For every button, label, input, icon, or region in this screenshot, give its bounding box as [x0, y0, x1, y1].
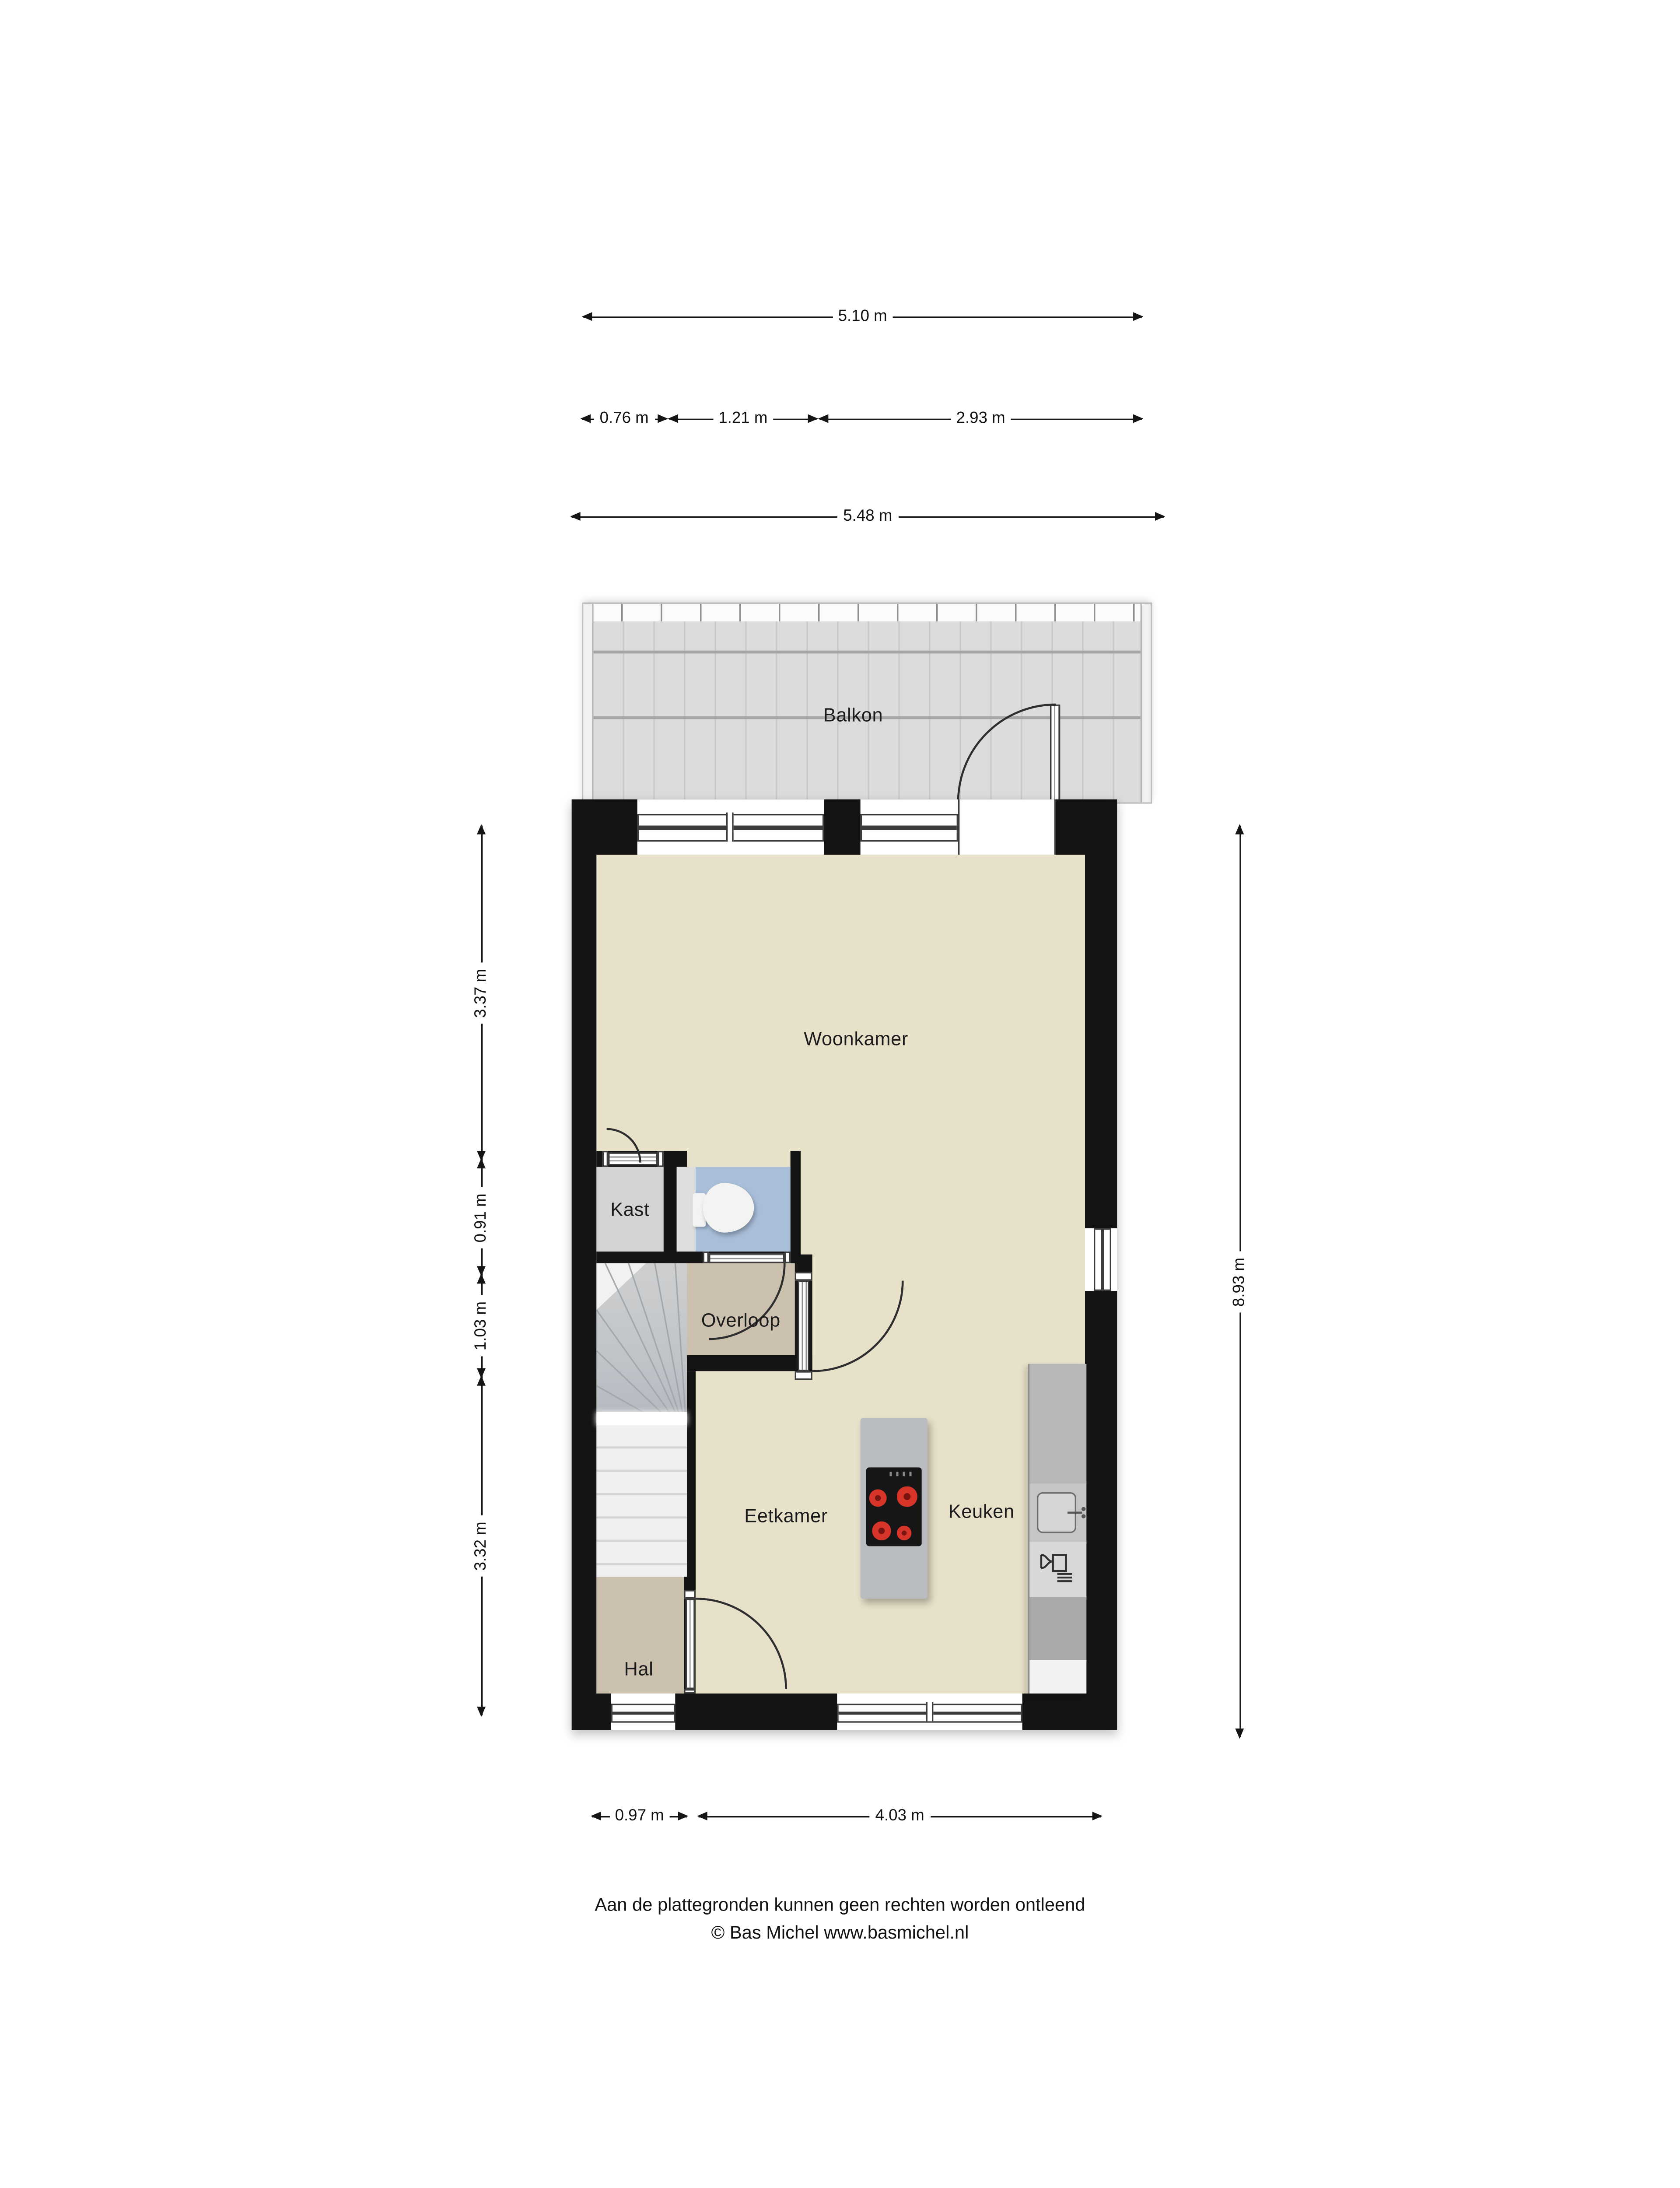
window-bottom-left [611, 1694, 675, 1730]
stairs [596, 1263, 687, 1577]
counter-dishwasher-module [1029, 1542, 1086, 1599]
window-mullion-icon [726, 813, 734, 842]
overloop-label: Overloop [701, 1309, 780, 1331]
dimension-label: 2.93 m [950, 410, 1011, 428]
dimension-label: 1.03 m [473, 1296, 490, 1357]
stairs-highlight [596, 1412, 687, 1425]
kast-label: Kast [610, 1198, 649, 1220]
dishwasher-icon [1040, 1553, 1075, 1585]
cooktop-controls-icon [889, 1472, 915, 1476]
balcony-railing-left-icon [583, 604, 593, 802]
balcony-door-opening [958, 799, 1056, 855]
balcony-railing-right-icon [1141, 604, 1151, 802]
burner-icon [869, 1489, 887, 1507]
window-bottom-right [837, 1694, 1022, 1730]
kitchen-counter [1028, 1364, 1086, 1694]
footer-disclaimer: Aan de plattegronden kunnen geen rechten… [0, 1895, 1680, 1915]
cooktop-icon [865, 1467, 921, 1546]
window-right-wall [1085, 1228, 1117, 1291]
dimension-left-d: 3.32 m [481, 1377, 483, 1715]
dimension-top-a: 0.76 m [582, 419, 666, 420]
dimension-label: 5.48 m [837, 508, 898, 526]
balcony-door-arc-icon [948, 694, 1065, 811]
stairs-winder [596, 1263, 687, 1412]
balcony-label: Balkon [823, 704, 883, 726]
dimension-bottom-a: 0.97 m [592, 1816, 687, 1817]
dimension-left-b: 0.91 m [481, 1160, 483, 1275]
floorplan: Woonkamer Kast Overloop Eetkamer Keuken … [572, 799, 1117, 1730]
eetkamer-label: Eetkamer [744, 1504, 828, 1526]
stairs-winder-treads-icon [596, 1263, 687, 1412]
wall-kast-east [664, 1151, 677, 1263]
balcony: Balkon [583, 604, 1151, 802]
kitchen-island [861, 1418, 927, 1599]
dimension-label: 3.37 m [473, 962, 490, 1023]
dimension-top-overall: 5.48 m [572, 516, 1164, 518]
toilet-bowl-icon [703, 1183, 754, 1232]
overloop-door-arc-icon [802, 1269, 913, 1380]
stairs-straight-treads [596, 1425, 687, 1577]
dimension-left-a: 3.37 m [481, 826, 483, 1160]
counter-module [1029, 1660, 1086, 1694]
dimension-label: 5.10 m [832, 308, 893, 326]
kast-door-arc-icon [598, 1117, 656, 1175]
window-top-left [637, 799, 824, 855]
window-top-right [861, 799, 958, 855]
dimension-label: 0.91 m [473, 1187, 490, 1248]
balcony-railing-icon [583, 604, 1151, 623]
wall-toilet-east [791, 1151, 801, 1263]
burner-icon [896, 1525, 912, 1541]
window-glazing-icon [611, 1703, 675, 1722]
hal-door-arc-icon [686, 1590, 796, 1701]
counter-sink-module [1029, 1483, 1086, 1543]
window-glazing-icon [861, 814, 958, 842]
door-jamb [658, 1151, 663, 1167]
wall-overloop-south [684, 1355, 812, 1371]
faucet-icon [1067, 1505, 1088, 1520]
balcony-deck-joint-icon [594, 651, 1141, 654]
counter-module [1029, 1364, 1086, 1485]
floorplan-page: 5.10 m 0.76 m 1.21 m 2.93 m 5.48 m 3.37 … [0, 0, 1680, 2188]
toilet-icon [693, 1182, 754, 1234]
dimension-top-c: 2.93 m [819, 419, 1142, 420]
burner-icon [897, 1487, 917, 1506]
dimension-label: 4.03 m [869, 1808, 930, 1825]
dimension-label: 0.76 m [594, 410, 654, 428]
dimension-top-b: 1.21 m [669, 419, 817, 420]
dimension-top-total: 5.10 m [583, 316, 1142, 318]
counter-module [1029, 1597, 1086, 1662]
dimension-left-c: 1.03 m [481, 1275, 483, 1377]
burner-icon [871, 1521, 890, 1539]
dimension-label: 1.21 m [713, 410, 773, 428]
dimension-bottom-b: 4.03 m [699, 1816, 1101, 1817]
dimension-right-total: 8.93 m [1239, 826, 1241, 1737]
dimension-label: 3.32 m [473, 1516, 490, 1577]
footer-copyright: © Bas Michel www.basmichel.nl [0, 1922, 1680, 1943]
woonkamer-label: Woonkamer [804, 1027, 908, 1049]
dimension-label: 0.97 m [609, 1808, 670, 1825]
dimension-label: 8.93 m [1231, 1251, 1249, 1312]
hal-label: Hal [624, 1658, 653, 1680]
window-mullion-icon [926, 1702, 934, 1721]
keuken-label: Keuken [948, 1500, 1015, 1522]
toilet-door-arc-icon [700, 1255, 795, 1350]
window-glazing-icon [1094, 1228, 1111, 1291]
